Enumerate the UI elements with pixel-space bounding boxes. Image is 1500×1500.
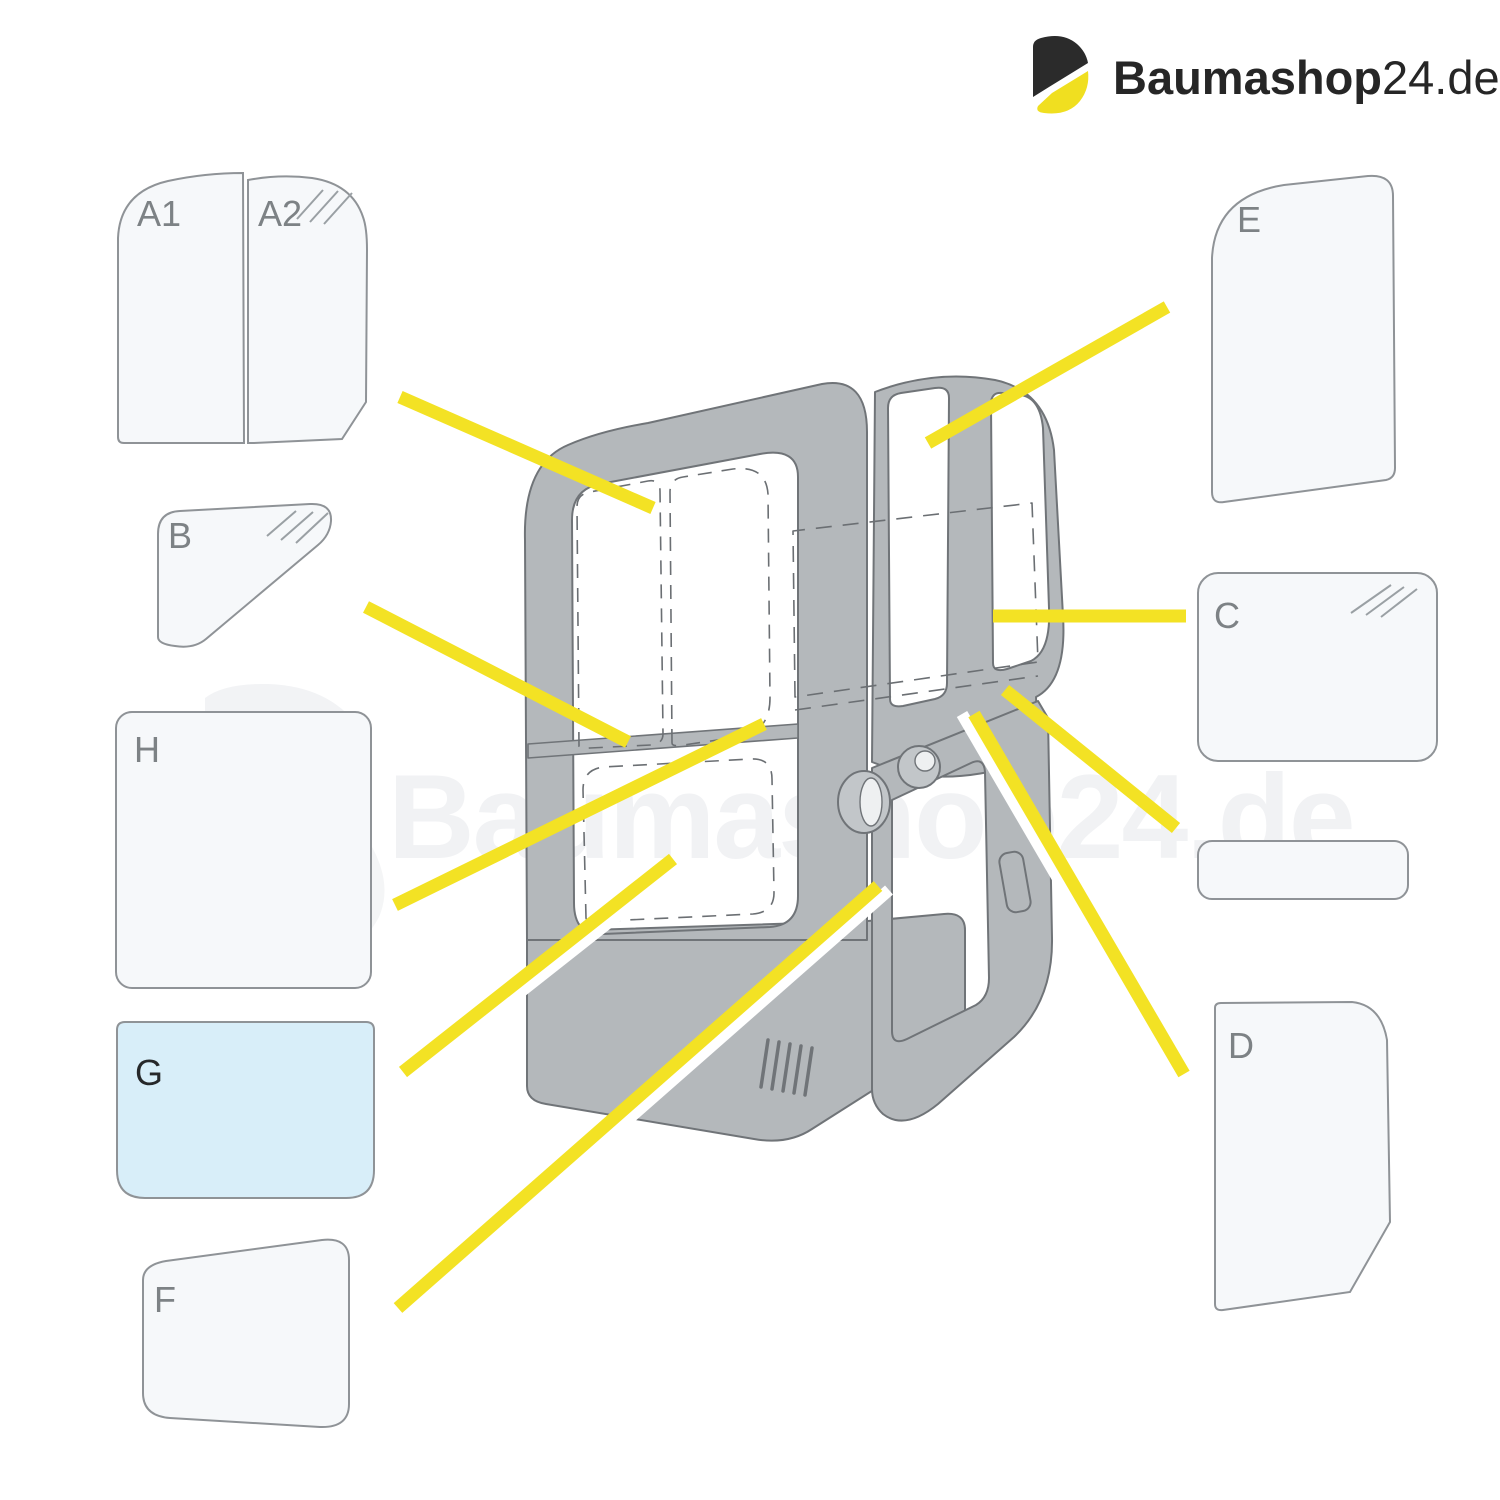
cab-knob-small-inner: [915, 751, 935, 771]
panel-h-label: H: [134, 729, 160, 770]
glass-panels-right: [1198, 176, 1437, 1310]
brand-logo: Baumashop24.de: [1033, 36, 1500, 114]
product-diagram-image: Baumashop24.de A1 A2 B H G F E C D: [0, 0, 1500, 1500]
panel-a2-label: A2: [258, 193, 302, 234]
callout-line-b: [366, 607, 628, 742]
glass-panels-left: [116, 173, 374, 1427]
panel-strip-shape: [1198, 841, 1408, 899]
panel-f-label: F: [154, 1279, 176, 1320]
brand-logo-text: Baumashop24.de: [1113, 51, 1500, 104]
brand-logo-text-number: 24: [1382, 51, 1434, 104]
panel-g-label: G: [135, 1052, 163, 1093]
excavator-glass-diagram: Baumashop24.de A1 A2 B H G F E C D: [0, 0, 1500, 1500]
panel-g-shape: [117, 1022, 374, 1198]
panel-c-label: C: [1214, 595, 1240, 636]
panel-a1-label: A1: [137, 193, 181, 234]
panel-b-label: B: [168, 515, 192, 556]
panel-d-label: D: [1228, 1025, 1254, 1066]
brand-logo-text-bold: Baumashop: [1113, 51, 1382, 104]
brand-logo-text-tld: .de: [1434, 51, 1499, 104]
panel-e-label: E: [1237, 199, 1261, 240]
panel-f-shape: [143, 1240, 349, 1427]
cab-knob-large-inner: [860, 778, 882, 826]
